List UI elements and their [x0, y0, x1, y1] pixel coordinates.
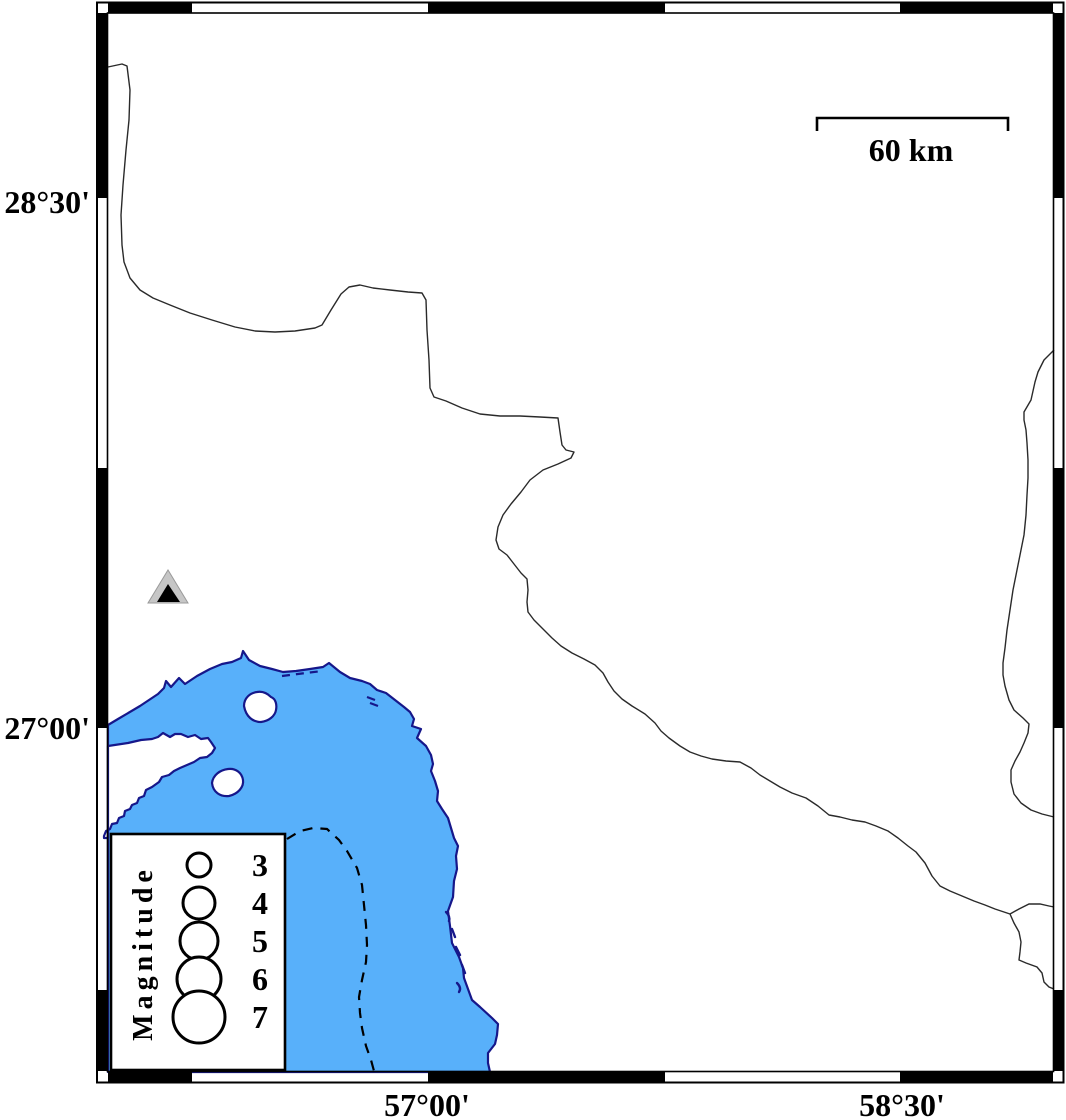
frame-right-segments — [1054, 13, 1064, 1071]
legend-label-m6: 6 — [239, 960, 281, 998]
legend-circle-m7 — [173, 991, 225, 1043]
island-south — [212, 769, 243, 796]
legend-label-m3: 3 — [239, 846, 281, 884]
province-boundary-branch-east — [1010, 904, 1054, 914]
lat-label-27-00: 27°00' — [0, 709, 90, 747]
frame-top-segments — [108, 3, 1053, 13]
province-boundary-east — [1003, 350, 1054, 817]
province-boundary-branch-south — [1010, 914, 1054, 989]
map-figure: 28°30' 27°00' 57°00' 58°30' 60 km Magnit… — [0, 0, 1066, 1120]
island-north — [244, 692, 276, 722]
legend-circle-m4 — [183, 887, 215, 919]
station-triangle-marker — [148, 570, 188, 603]
lat-label-28-30: 28°30' — [0, 183, 90, 221]
lon-label-58-30: 58°30' — [822, 1086, 982, 1120]
legend-label-m7: 7 — [239, 998, 281, 1036]
lon-label-57-00: 57°00' — [347, 1086, 507, 1120]
frame-left-segments — [98, 13, 108, 1071]
legend-label-m4: 4 — [239, 884, 281, 922]
legend-title: Magnitude — [128, 865, 160, 1041]
frame-bottom-segments — [108, 1072, 1053, 1082]
scale-bar-label: 60 km — [831, 132, 991, 169]
legend-circle-m3 — [187, 853, 211, 877]
legend-circle-m5 — [180, 922, 218, 960]
legend-label-m5: 5 — [239, 922, 281, 960]
scale-bar — [817, 118, 1008, 131]
